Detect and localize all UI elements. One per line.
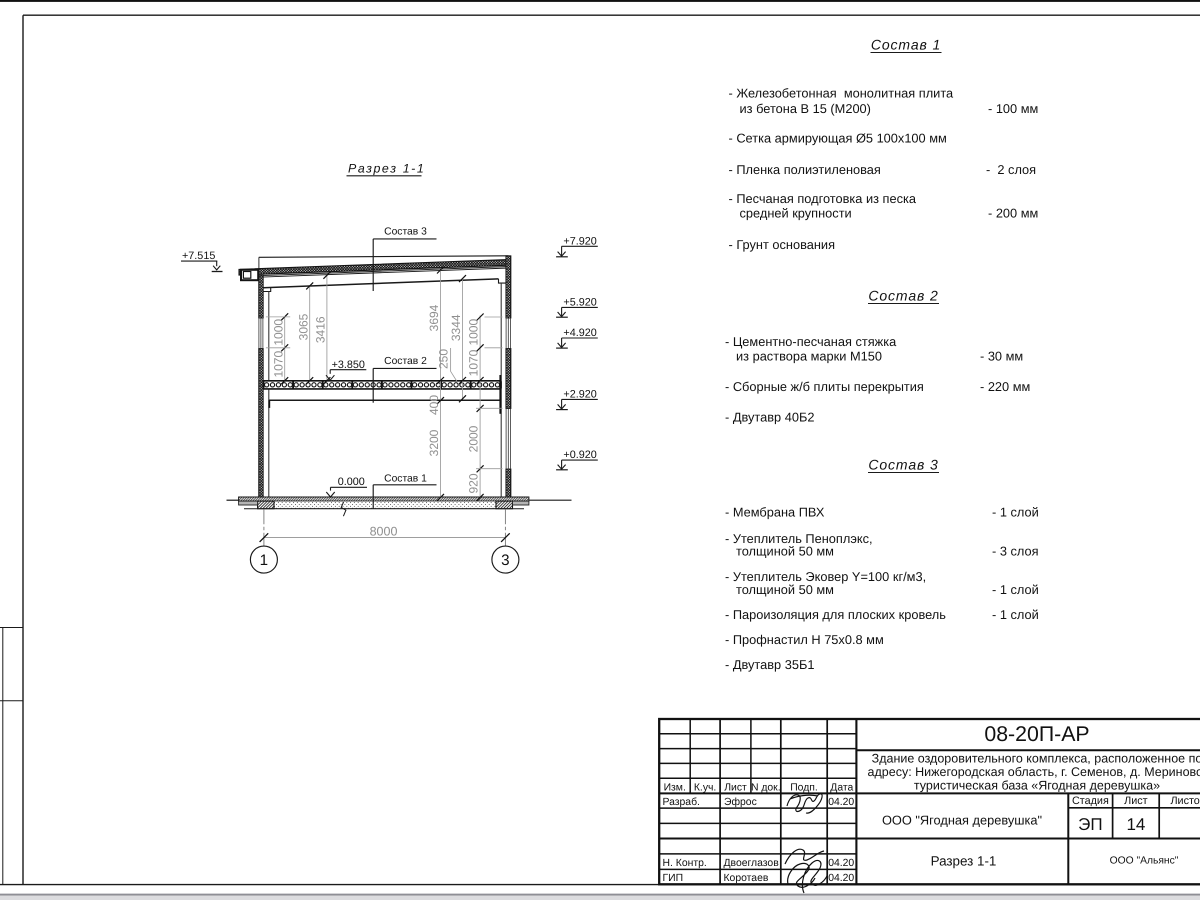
svg-text:400: 400 [427, 395, 441, 415]
svg-text:- Профнастил Н 75х0.8 мм: - Профнастил Н 75х0.8 мм [725, 632, 884, 647]
svg-text:ООО "Ягодная деревушка": ООО "Ягодная деревушка" [882, 812, 1042, 827]
svg-text:- 30 мм: - 30 мм [980, 348, 1023, 363]
svg-text:Двоеглазов: Двоеглазов [724, 858, 780, 869]
svg-text:920: 920 [467, 473, 481, 493]
svg-text:Состав 3: Состав 3 [384, 226, 427, 237]
svg-text:Состав 3: Состав 3 [868, 456, 938, 472]
svg-text:04.20: 04.20 [828, 858, 854, 869]
svg-text:Н. Контр.: Н. Контр. [663, 858, 707, 869]
svg-text:- Сетка армирующая Ø5 100х100: - Сетка армирующая Ø5 100х100 мм [729, 130, 947, 145]
svg-text:3200: 3200 [427, 429, 441, 456]
svg-text:Подп.: Подп. [790, 783, 818, 794]
svg-text:+0.920: +0.920 [563, 449, 596, 461]
svg-text:- Цементно-песчаная стяжка: - Цементно-песчаная стяжка [725, 334, 897, 349]
svg-text:Дата: Дата [830, 783, 853, 794]
svg-text:14: 14 [1126, 815, 1145, 834]
svg-text:Листов: Листов [1170, 795, 1200, 807]
svg-text:- Пленка полиэтиленовая: - Пленка полиэтиленовая [729, 162, 881, 177]
svg-text:1000: 1000 [467, 319, 481, 346]
svg-text:Состав 1: Состав 1 [871, 36, 941, 52]
svg-text:Разраб.: Разраб. [663, 797, 700, 808]
svg-text:04.20: 04.20 [828, 873, 854, 884]
svg-text:- 3 слоя: - 3 слоя [992, 544, 1039, 559]
svg-text:из бетона В 15 (М200): из бетона В 15 (М200) [740, 101, 871, 116]
svg-text:- Песчаная подготовка из песка: - Песчаная подготовка из песка [729, 191, 917, 206]
svg-text:- 220 мм: - 220 мм [980, 379, 1030, 394]
svg-text:N док.: N док. [751, 783, 781, 794]
svg-text:3: 3 [501, 552, 509, 569]
svg-text:0.000: 0.000 [338, 476, 365, 488]
svg-text:1070: 1070 [467, 349, 481, 376]
svg-text:8000: 8000 [370, 524, 398, 538]
svg-text:- Мембрана ПВХ: - Мембрана ПВХ [725, 504, 825, 519]
svg-text:08-20П-АР: 08-20П-АР [984, 722, 1089, 746]
svg-text:Эфрос: Эфрос [724, 797, 757, 808]
svg-text:- Двутавр 40Б2: - Двутавр 40Б2 [725, 409, 814, 424]
svg-text:Стадия: Стадия [1072, 795, 1109, 807]
svg-text:К.уч.: К.уч. [694, 783, 716, 794]
svg-text:Лист: Лист [1124, 795, 1148, 807]
svg-text:- Пароизоляция для плоских кро: - Пароизоляция для плоских кровель [725, 607, 946, 622]
svg-text:Лист: Лист [724, 783, 747, 794]
svg-text:250: 250 [437, 349, 451, 369]
svg-text:из раствора марки М150: из раствора марки М150 [736, 348, 882, 363]
svg-text:Коротаев: Коротаев [724, 873, 769, 884]
svg-text:- 200 мм: - 200 мм [988, 206, 1038, 221]
svg-text:средней крупности: средней крупности [740, 206, 852, 221]
svg-text:толщиной 50 мм: толщиной 50 мм [736, 544, 834, 559]
svg-text:ЭП: ЭП [1078, 815, 1102, 834]
svg-text:- 100 мм: - 100 мм [988, 101, 1038, 116]
svg-text:3065: 3065 [296, 313, 310, 340]
svg-text:1000: 1000 [271, 319, 285, 346]
svg-text:- Сборные ж/б плиты перекрытия: - Сборные ж/б плиты перекрытия [725, 379, 924, 394]
svg-text:+4.920: +4.920 [563, 327, 596, 339]
svg-text:ООО "Альянс": ООО "Альянс" [1110, 855, 1179, 866]
svg-text:- 1 слой: - 1 слой [992, 607, 1039, 622]
svg-text:- Грунт основания: - Грунт основания [729, 237, 836, 252]
svg-text:- Железобетонная монолитная п: - Железобетонная монолитная плита [729, 85, 955, 100]
svg-text:- 1 слой: - 1 слой [992, 582, 1039, 597]
svg-text:- 1 слой: - 1 слой [992, 504, 1039, 519]
svg-text:+2.920: +2.920 [563, 389, 596, 401]
svg-text:Разрез 1-1: Разрез 1-1 [931, 853, 997, 868]
svg-text:Здание оздоровительного компле: Здание оздоровительного комплекса, распо… [872, 751, 1200, 765]
svg-text:3344: 3344 [449, 314, 463, 341]
svg-text:04.20: 04.20 [828, 797, 854, 808]
svg-text:Разрез 1-1: Разрез 1-1 [348, 161, 425, 175]
svg-text:1070: 1070 [271, 351, 285, 378]
svg-text:- Двутавр 35Б1: - Двутавр 35Б1 [725, 657, 814, 672]
svg-text:туристическая база «Ягодная де: туристическая база «Ягодная деревушка» [914, 779, 1160, 793]
svg-text:- 2 слоя: - 2 слоя [986, 162, 1036, 177]
svg-text:+7.920: +7.920 [563, 235, 596, 247]
svg-text:+3.850: +3.850 [332, 359, 365, 371]
svg-text:Состав 2: Состав 2 [384, 356, 427, 367]
svg-text:Состав 2: Состав 2 [868, 287, 938, 303]
svg-text:1: 1 [260, 552, 268, 569]
svg-text:2000: 2000 [467, 425, 481, 452]
svg-text:3416: 3416 [314, 316, 328, 343]
svg-text:+5.920: +5.920 [563, 297, 596, 309]
svg-text:Изм.: Изм. [664, 783, 686, 794]
svg-text:толщиной 50 мм: толщиной 50 мм [736, 582, 834, 597]
svg-text:3694: 3694 [427, 304, 441, 331]
svg-text:Состав 1: Состав 1 [384, 474, 427, 485]
svg-text:ГИП: ГИП [663, 873, 684, 884]
svg-text:адресу: Нижегородская область,: адресу: Нижегородская область, г. Семено… [868, 765, 1200, 779]
svg-text:+7.515: +7.515 [182, 250, 215, 262]
